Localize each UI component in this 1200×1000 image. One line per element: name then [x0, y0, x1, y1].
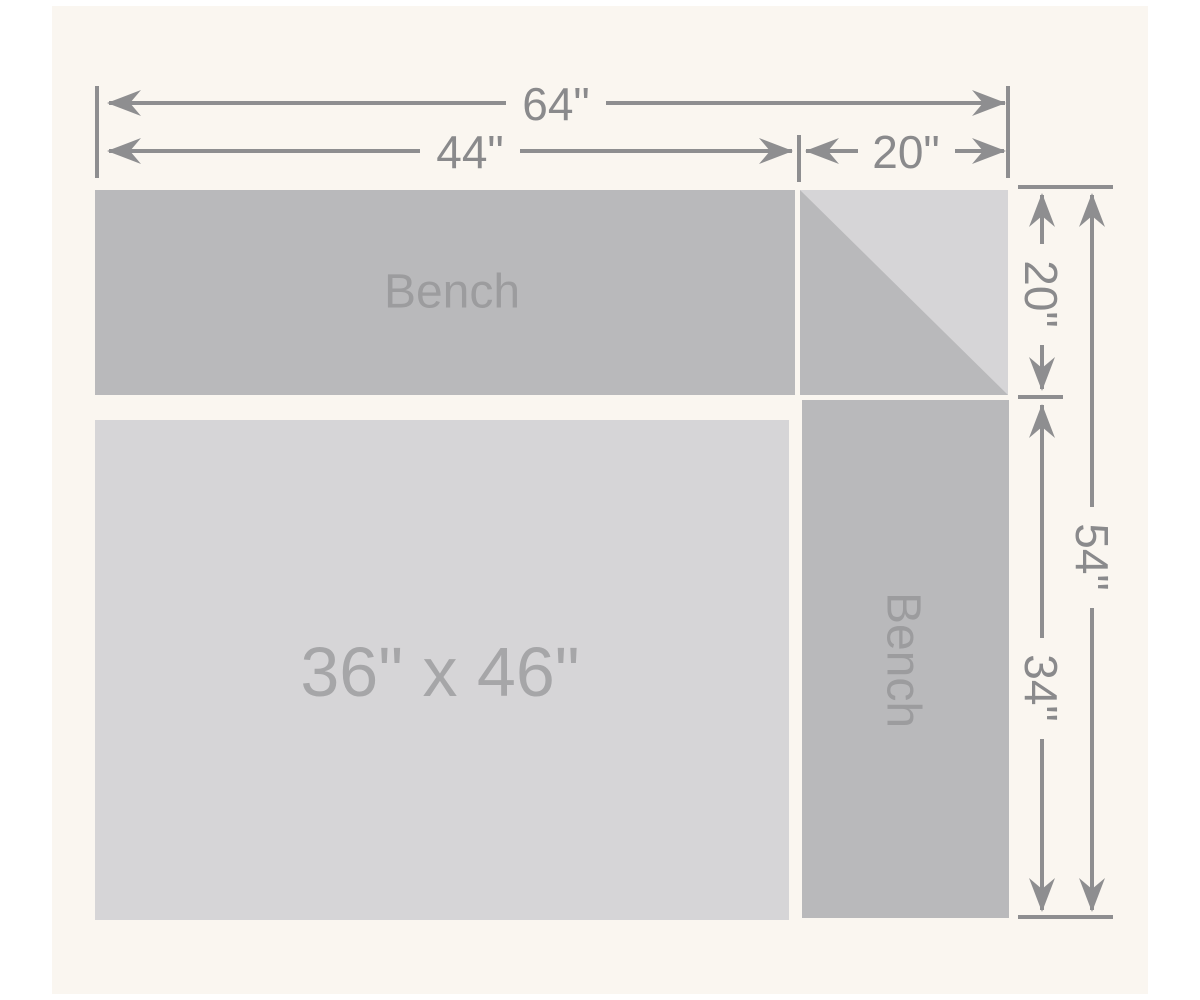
- top-bench-label: Bench: [384, 266, 520, 319]
- top-bench-length-label: 44": [436, 126, 504, 178]
- bench-layout-diagram: 64" 44" 20" 20" 54" 34" Bench Bench 36" …: [0, 0, 1200, 1000]
- corner-height-label: 20": [1015, 260, 1067, 328]
- total-depth-label: 54": [1066, 523, 1118, 591]
- table-size-label: 36" x 46": [300, 633, 579, 711]
- total-width-label: 64": [522, 78, 590, 130]
- side-bench-length-label: 34": [1015, 654, 1067, 722]
- side-bench-label: Bench: [877, 592, 930, 728]
- corner-width-label: 20": [872, 126, 940, 178]
